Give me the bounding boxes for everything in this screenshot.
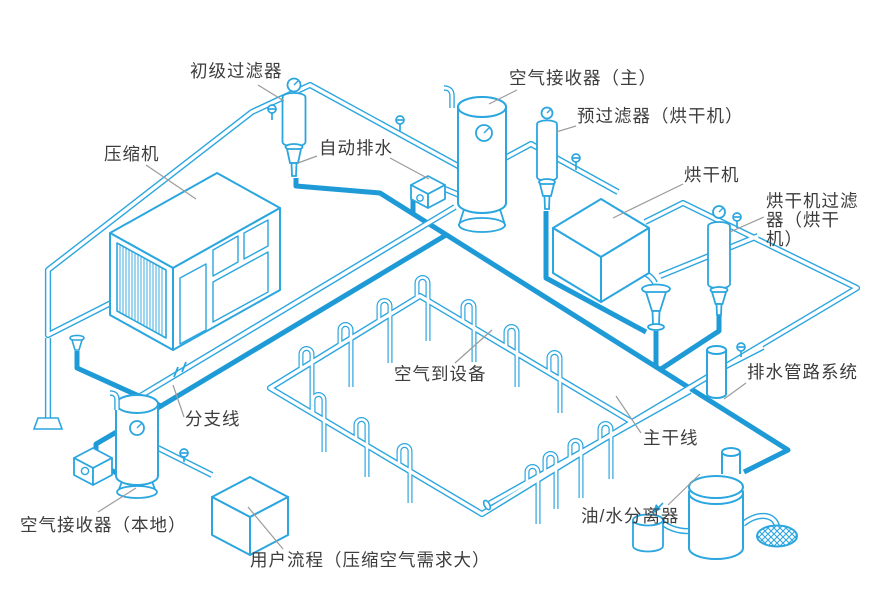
- label-auto-drain: 自动排水: [319, 139, 393, 158]
- label-main-line: 主干线: [643, 429, 699, 448]
- gauge-icon: [713, 206, 725, 218]
- valve-icon: [396, 116, 404, 131]
- compressor-drain-icon: [70, 335, 84, 350]
- local-drain-box-icon: [74, 448, 112, 485]
- air-receiver-main-graphic: [458, 97, 506, 232]
- label-oil-water-separator: 油/水分离器: [581, 507, 679, 526]
- gauge-icon: [476, 125, 492, 141]
- gauge-icon: [542, 108, 553, 119]
- air-receiver-local-graphic: [116, 395, 158, 498]
- label-primary-filter: 初级过滤器: [190, 62, 283, 81]
- label-drain-piping-system: 排水管路系统: [747, 363, 858, 382]
- label-air-to-equipment: 空气到设备: [394, 365, 487, 384]
- drain-standpipe-graphic: [707, 346, 726, 398]
- dryer-graphic: [553, 199, 649, 302]
- valve-icon: [268, 105, 276, 120]
- label-pre-filter-dryer: 预过滤器（烘干机）: [577, 107, 744, 126]
- user-process-box-graphic: [212, 477, 288, 555]
- pre-filter-graphic: [537, 108, 557, 210]
- dryer-filter-graphic: [708, 206, 730, 315]
- gauge-icon: [288, 79, 301, 92]
- pipe-stand-foot: [34, 418, 62, 429]
- label-branch-line: 分支线: [185, 410, 241, 429]
- diagram-canvas: 初级过滤器 压缩机 自动排水 空气接收器（主） 预过滤器（烘干机） 烘干机 烘干…: [0, 0, 870, 600]
- label-compressor: 压缩机: [104, 145, 160, 164]
- label-air-receiver-main: 空气接收器（主）: [509, 69, 657, 88]
- auto-drain-box-icon: [411, 176, 445, 208]
- label-user-process: 用户流程（压缩空气需求大）: [250, 551, 491, 570]
- condensate-trap-icon: [642, 285, 670, 331]
- label-dryer-filter: 烘干机过滤器（烘干机）: [766, 192, 862, 249]
- label-air-receiver-local: 空气接收器（本地）: [20, 516, 187, 535]
- floor-drain-grate-icon: [757, 526, 797, 547]
- label-dryer: 烘干机: [684, 166, 740, 185]
- piping-diagram: [0, 0, 870, 600]
- oil-water-separator-graphic: [689, 448, 743, 559]
- gauge-icon: [130, 421, 144, 435]
